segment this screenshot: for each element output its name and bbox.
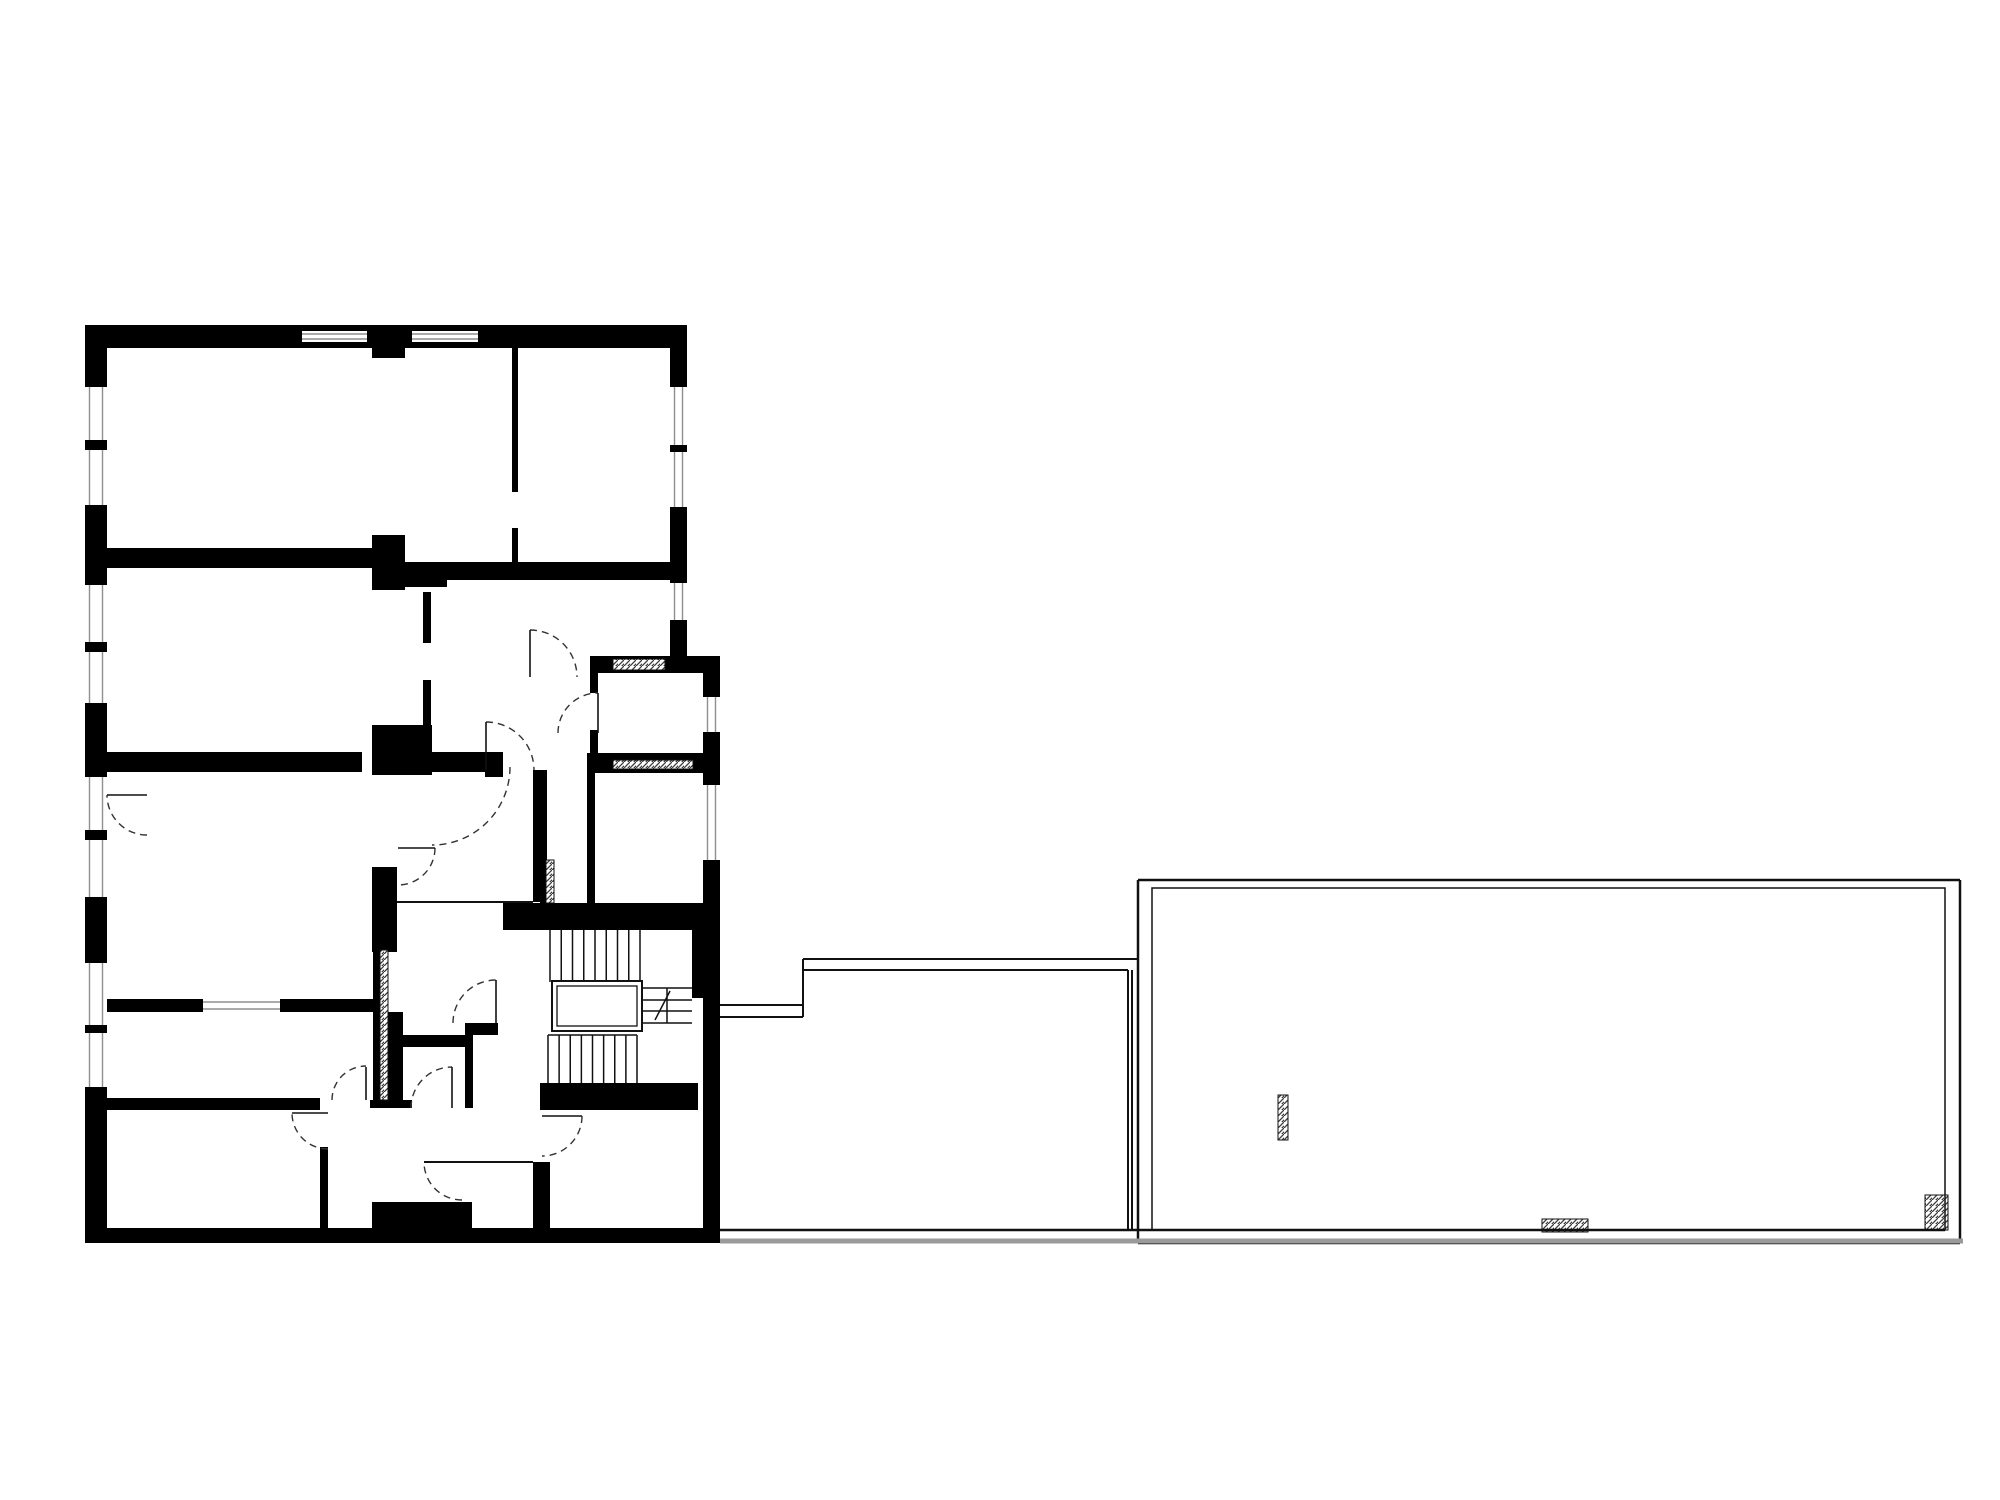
window-opening <box>302 331 367 342</box>
wall-segment <box>540 1083 698 1110</box>
wall-segment <box>370 1100 412 1108</box>
door <box>432 767 510 845</box>
window-opening <box>85 1033 107 1087</box>
window-opening <box>85 963 107 1025</box>
wall-segment <box>85 325 687 348</box>
wall-segment <box>692 930 703 998</box>
wall-segment <box>512 348 518 492</box>
door <box>107 795 147 835</box>
wall-segment <box>107 1098 320 1110</box>
floor-plan-page <box>0 0 2000 1500</box>
wall-segment <box>388 1012 403 1100</box>
windows-layer <box>85 331 720 1087</box>
wall-segment <box>372 348 405 358</box>
stair-flight <box>550 930 640 982</box>
hatched-wall <box>613 760 693 769</box>
hatched-wall <box>546 860 554 903</box>
door <box>411 1067 452 1108</box>
window-opening <box>85 387 107 440</box>
window-opening <box>670 387 687 445</box>
window-opening <box>85 585 107 642</box>
door <box>292 1113 328 1149</box>
door <box>453 980 496 1023</box>
door <box>542 1116 582 1156</box>
wall-segment <box>432 752 485 772</box>
wall-segment <box>465 1023 498 1035</box>
door-swing-arc <box>432 767 510 845</box>
door <box>558 693 598 733</box>
wall-segment <box>405 562 447 587</box>
wall-segment <box>447 562 670 580</box>
wall-segment <box>703 656 720 1243</box>
wall-segment <box>85 1228 720 1243</box>
wall-segment <box>587 773 595 903</box>
door-swing-arc <box>292 1113 328 1149</box>
door-swing-arc <box>453 980 496 1023</box>
annex-inner-outline <box>1152 888 1945 1230</box>
door-swing-arc <box>542 1116 582 1156</box>
door-swing-arc <box>411 1067 452 1108</box>
wall-segment <box>107 548 372 568</box>
wall-segment <box>590 730 598 773</box>
hatched-wall <box>613 659 665 670</box>
hatched-walls-layer <box>380 659 1948 1232</box>
floor-plan-drawing <box>0 0 2000 1500</box>
annex-outline-layer <box>397 880 1963 1243</box>
wall-segment <box>465 1023 473 1108</box>
wall-segment <box>533 1162 550 1240</box>
wall-segment <box>320 1147 328 1230</box>
wall-segment <box>423 680 431 725</box>
floor-plan <box>0 0 2000 1500</box>
window-opening <box>85 840 107 897</box>
window-opening <box>85 450 107 505</box>
door <box>332 1066 366 1100</box>
door-swing-arc <box>398 848 435 885</box>
door-swing-arc <box>107 795 147 835</box>
window-opening <box>703 785 720 860</box>
window-opening <box>670 583 687 620</box>
window-opening <box>203 999 280 1012</box>
wall-segment <box>372 725 432 775</box>
door-swing-arc <box>424 1162 462 1200</box>
window-opening <box>412 331 478 342</box>
door-swing-arc <box>558 693 598 733</box>
wall-segment <box>590 656 598 693</box>
wall-segment <box>372 1202 472 1230</box>
door <box>398 848 435 885</box>
wall-segment <box>403 1035 465 1047</box>
wall-segment <box>540 860 546 903</box>
wall-segment <box>372 867 397 952</box>
window-opening <box>85 777 107 830</box>
wall-segment <box>107 752 362 772</box>
door-swing-arc <box>530 630 577 677</box>
window-opening <box>670 452 687 507</box>
window-opening <box>85 652 107 703</box>
stair-flight <box>548 1035 637 1083</box>
hatched-wall <box>1278 1095 1288 1140</box>
wall-segment <box>423 592 431 643</box>
door <box>530 630 577 677</box>
walls-layer <box>85 325 720 1243</box>
window-opening <box>703 697 720 732</box>
door-swing-arc <box>332 1066 366 1100</box>
wall-segment <box>503 903 720 930</box>
door <box>424 1162 462 1200</box>
stairs-layer <box>548 930 692 1083</box>
hatched-wall <box>380 950 388 1100</box>
elevator-shaft <box>552 981 642 1031</box>
wall-segment <box>372 535 405 590</box>
wall-segment <box>485 752 503 777</box>
wall-segment <box>373 950 380 1100</box>
